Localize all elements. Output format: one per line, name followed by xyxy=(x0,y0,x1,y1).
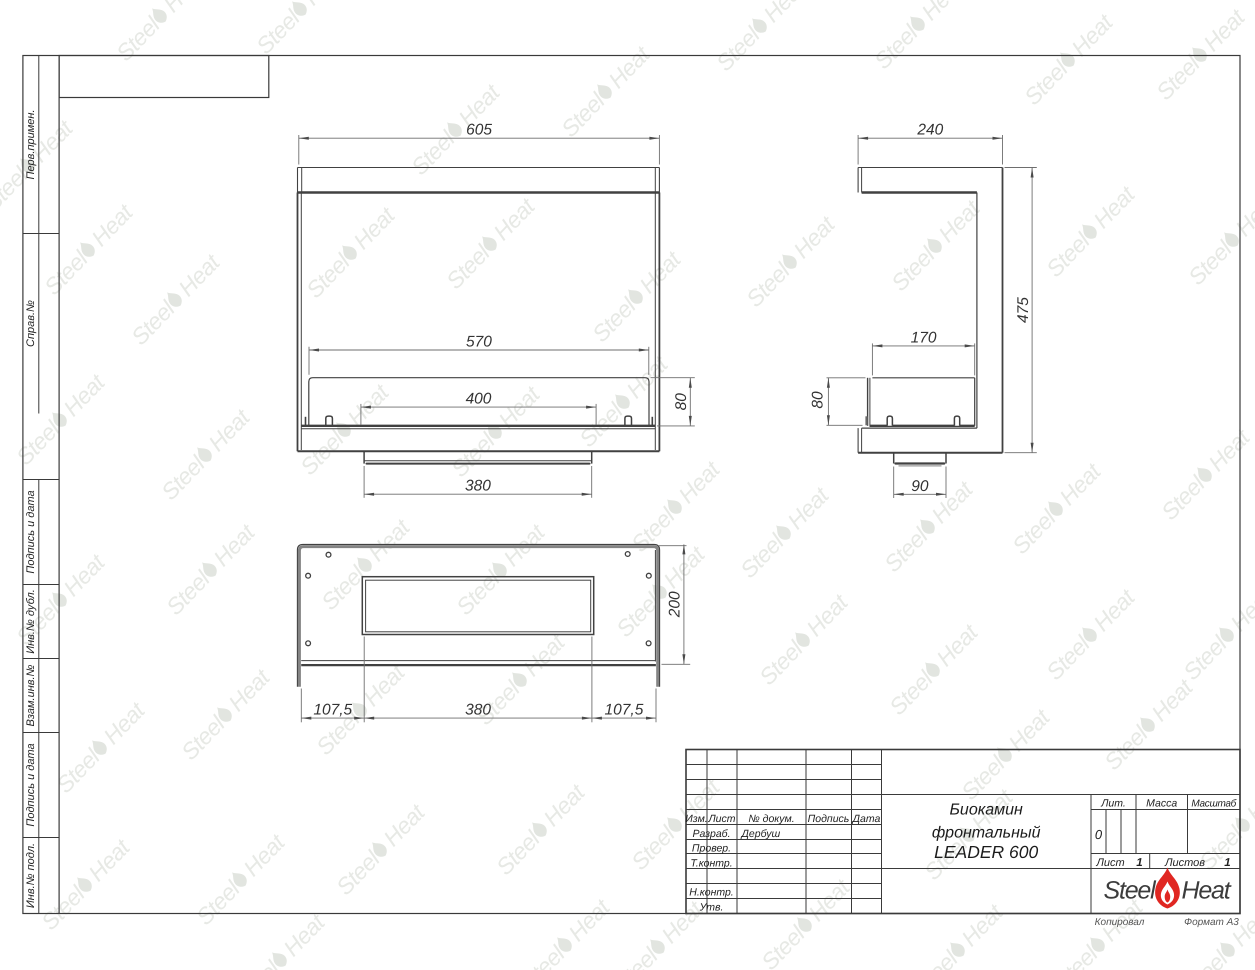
svg-text:Подпись и дата: Подпись и дата xyxy=(25,743,37,826)
svg-text:80: 80 xyxy=(673,393,690,411)
svg-text:Взам.инв.№: Взам.инв.№ xyxy=(25,664,37,726)
svg-text:240: 240 xyxy=(916,122,943,139)
svg-text:Инв.№ дубл.: Инв.№ дубл. xyxy=(25,589,37,654)
svg-text:Дербуш: Дербуш xyxy=(741,828,781,840)
svg-text:107,5: 107,5 xyxy=(313,702,352,719)
svg-text:Формат А3: Формат А3 xyxy=(1184,917,1239,928)
svg-text:Heat: Heat xyxy=(1182,877,1232,905)
svg-text:Разраб.: Разраб. xyxy=(693,828,731,840)
svg-text:Изм.: Изм. xyxy=(685,813,707,825)
svg-text:Подпись и дата: Подпись и дата xyxy=(25,490,37,573)
svg-text:170: 170 xyxy=(911,329,937,346)
svg-text:400: 400 xyxy=(466,391,492,408)
svg-text:90: 90 xyxy=(911,478,929,495)
svg-text:Подпись: Подпись xyxy=(808,813,850,825)
svg-text:Лист: Лист xyxy=(707,813,735,825)
svg-text:Перв.примен.: Перв.примен. xyxy=(25,109,37,179)
svg-text:Н.контр.: Н.контр. xyxy=(689,887,733,899)
svg-text:1: 1 xyxy=(1224,857,1230,869)
svg-text:Т.контр.: Т.контр. xyxy=(690,857,732,869)
svg-text:LEADER 600: LEADER 600 xyxy=(934,842,1038,862)
svg-text:475: 475 xyxy=(1015,297,1032,323)
svg-text:Steel: Steel xyxy=(1104,877,1158,905)
svg-text:1: 1 xyxy=(1136,857,1142,869)
svg-text:107,5: 107,5 xyxy=(605,702,644,719)
svg-text:0: 0 xyxy=(1095,827,1103,842)
svg-text:Листов: Листов xyxy=(1164,857,1205,869)
svg-text:605: 605 xyxy=(466,122,492,139)
svg-text:Лит.: Лит. xyxy=(1100,797,1126,809)
svg-text:Биокамин: Биокамин xyxy=(950,801,1024,818)
svg-text:Масса: Масса xyxy=(1146,797,1177,809)
svg-text:Справ.№: Справ.№ xyxy=(25,300,37,347)
svg-text:80: 80 xyxy=(810,391,827,409)
svg-text:фронтальный: фронтальный xyxy=(932,825,1041,842)
svg-text:Утв.: Утв. xyxy=(699,902,724,914)
svg-text:380: 380 xyxy=(465,478,491,495)
svg-text:200: 200 xyxy=(667,591,684,618)
svg-text:Дата: Дата xyxy=(852,813,881,825)
svg-text:№ докум.: № докум. xyxy=(748,813,794,825)
svg-text:Инв.№ подл.: Инв.№ подл. xyxy=(25,843,37,908)
svg-text:Копировал: Копировал xyxy=(1095,917,1145,928)
svg-text:Масштаб: Масштаб xyxy=(1191,798,1236,809)
svg-text:Лист: Лист xyxy=(1095,857,1124,869)
svg-text:Провер.: Провер. xyxy=(692,843,731,855)
svg-text:570: 570 xyxy=(466,334,492,351)
svg-text:380: 380 xyxy=(465,702,491,719)
